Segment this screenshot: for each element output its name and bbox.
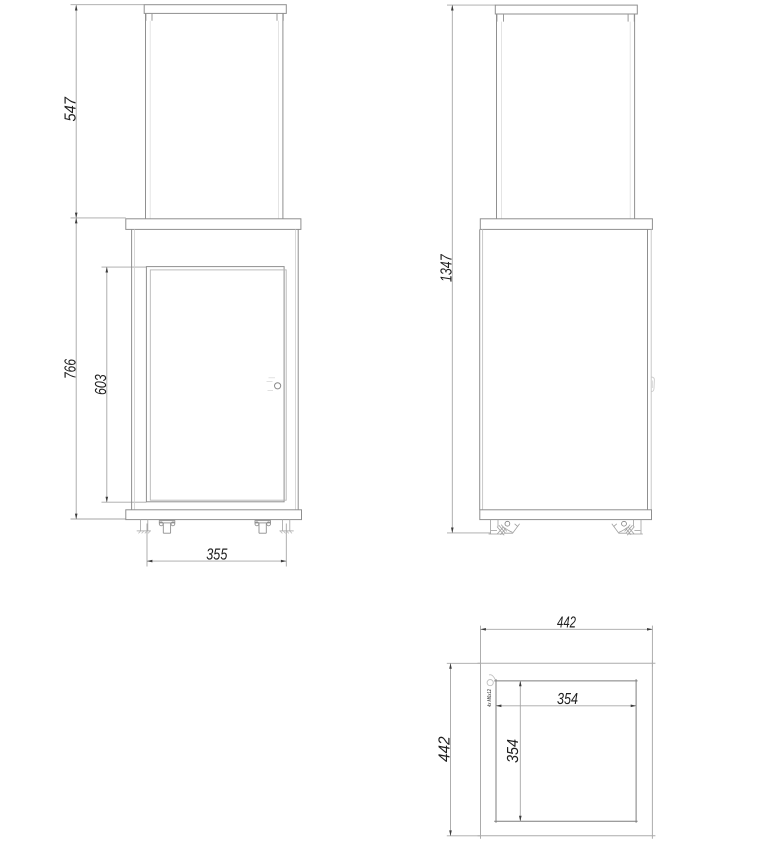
svg-text:354: 354 — [557, 691, 578, 708]
svg-text:4x M6x12: 4x M6x12 — [487, 689, 493, 707]
svg-text:442: 442 — [437, 736, 454, 762]
svg-text:1347: 1347 — [439, 254, 456, 282]
svg-text:442: 442 — [557, 615, 576, 632]
svg-text:354: 354 — [505, 739, 522, 763]
svg-text:355: 355 — [206, 547, 227, 564]
svg-text:603: 603 — [93, 374, 110, 395]
svg-text:547: 547 — [62, 96, 79, 122]
svg-text:766: 766 — [62, 359, 79, 379]
